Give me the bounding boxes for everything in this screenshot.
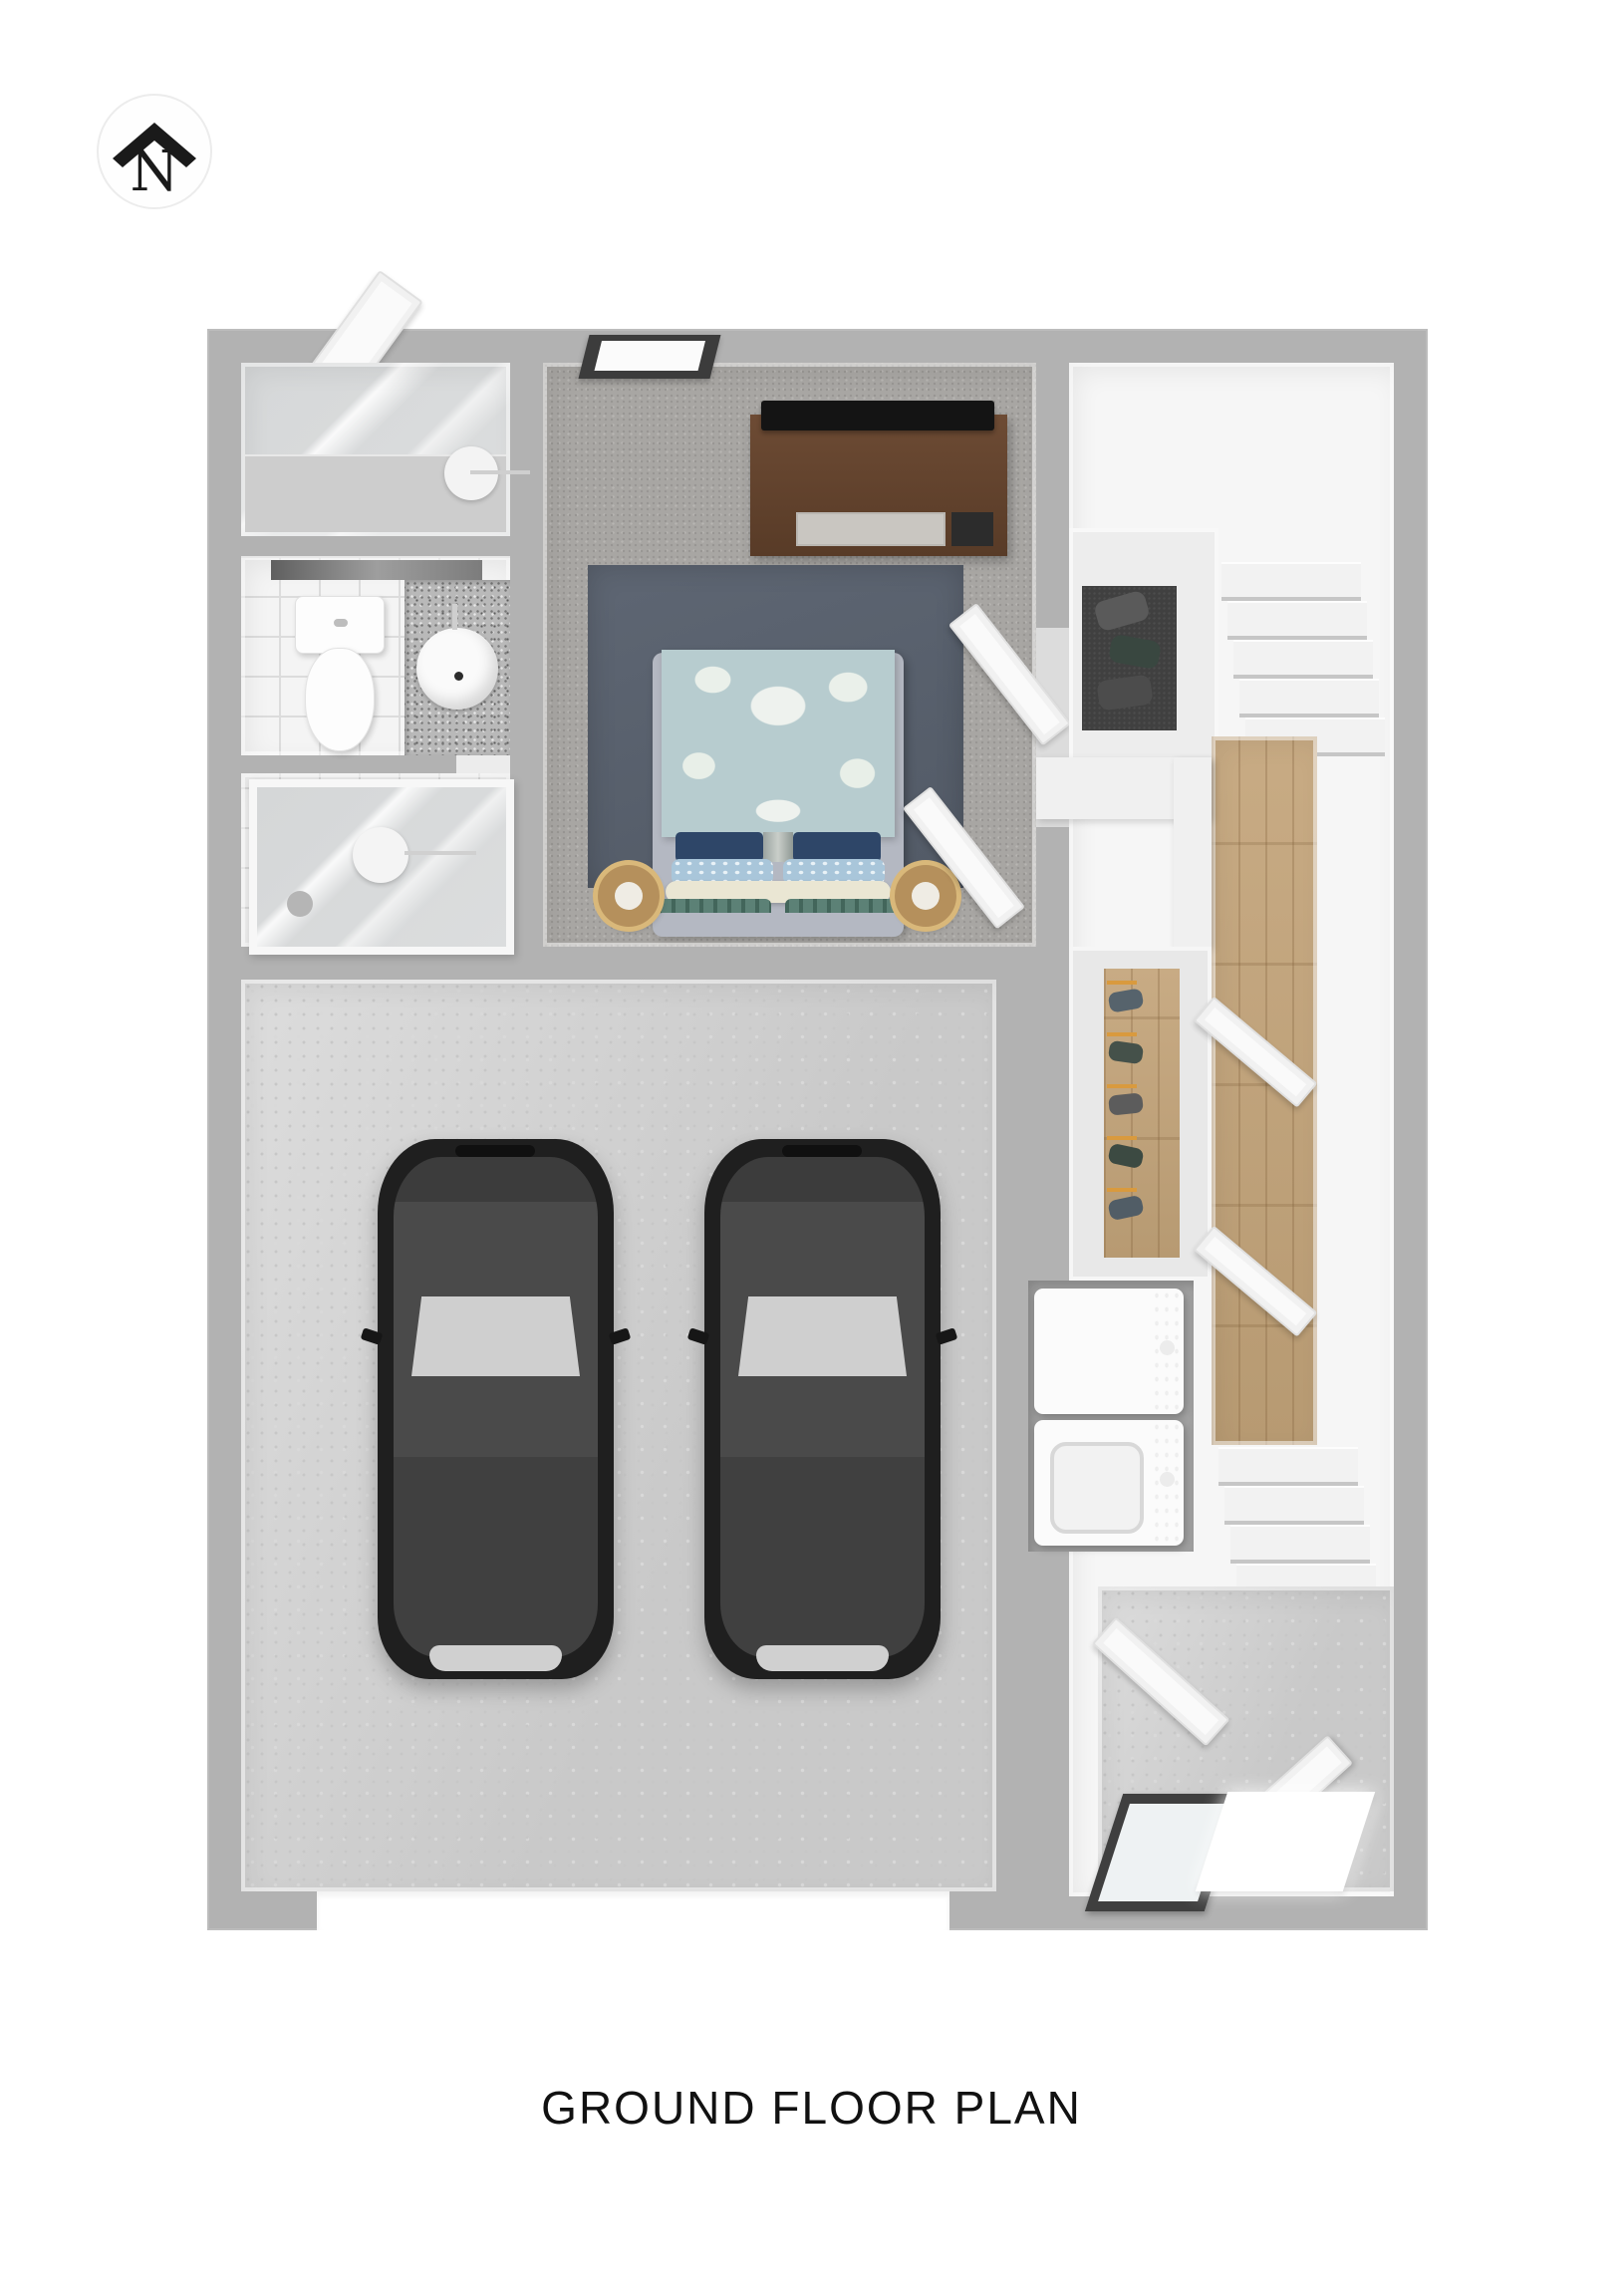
car-rear-window [756, 1645, 889, 1671]
car-roof [720, 1157, 925, 1657]
title-block: GROUND FLOOR PLAN [0, 2081, 1623, 2135]
car-roof [394, 1157, 598, 1657]
car-right [704, 1139, 941, 1679]
laundry-nook [1028, 1281, 1194, 1552]
hanger-hook [1107, 981, 1137, 985]
floor-plan-page: N [0, 0, 1623, 2296]
bedside-lamp-right [912, 882, 940, 910]
sink-drain [454, 672, 463, 681]
hanging-garment [1108, 1092, 1144, 1115]
folded-clothes-1 [1093, 589, 1151, 632]
shower-head-bottom [353, 827, 408, 883]
television [761, 401, 994, 430]
north-arrow-icon: N [96, 93, 213, 210]
floor-plan [207, 329, 1428, 1930]
hall-wall-stub-v [1174, 757, 1212, 947]
hanger-hook [1107, 1188, 1137, 1192]
stair-tread [1230, 1525, 1370, 1564]
landing-closet-interior [1082, 586, 1177, 730]
washer-control-panel [1152, 1289, 1184, 1414]
dryer-door [1050, 1442, 1144, 1534]
dryer-knob [1160, 1472, 1175, 1487]
bedside-table-right [895, 865, 956, 927]
bed-duvet-floral [662, 650, 895, 837]
vessel-sink [416, 628, 498, 710]
toilet-bowl [305, 648, 375, 751]
shower-arm-top [470, 470, 530, 474]
vanity-counter [405, 580, 510, 755]
shower-drain [287, 891, 313, 917]
bed-footboard [653, 913, 904, 937]
car-sunroof [455, 1145, 535, 1157]
dryer-control-panel [1152, 1420, 1184, 1546]
pillow-navy-left [676, 832, 763, 862]
hall-closet [1069, 947, 1212, 1281]
car-windshield [411, 1296, 580, 1376]
car-rear-window [429, 1645, 562, 1671]
north-indicator: N [96, 93, 213, 210]
hanger-hook [1107, 1084, 1137, 1088]
hanger-hook [1107, 1032, 1137, 1036]
hanger-hook [1107, 1136, 1137, 1140]
folded-clothes-3 [1096, 674, 1154, 711]
staircase-upper [1221, 562, 1361, 736]
washer [1034, 1289, 1184, 1414]
shower-room-top [241, 363, 510, 536]
bedroom-window [579, 335, 721, 379]
bath-door-opening [456, 755, 510, 773]
folded-clothes-2 [1108, 634, 1162, 670]
pillow-stripe-silver [763, 832, 793, 862]
stair-tread [1221, 562, 1361, 601]
car-left [378, 1139, 614, 1679]
dryer [1034, 1420, 1184, 1546]
stair-tread [1227, 601, 1367, 640]
stair-tread [1233, 640, 1373, 679]
stair-tread [1224, 1486, 1364, 1525]
tv-console [750, 415, 1007, 556]
sink-faucet [452, 604, 457, 630]
bedside-lamp-left [615, 882, 643, 910]
toilet-flush-button [334, 619, 348, 627]
page-title: GROUND FLOOR PLAN [541, 2082, 1082, 2134]
shower-room-bottom [241, 773, 510, 947]
stair-tread [1218, 1447, 1358, 1486]
washer-knob [1160, 1340, 1175, 1355]
garage [241, 980, 996, 1891]
staircase-lower [1218, 1447, 1358, 1586]
stair-tread [1239, 679, 1379, 717]
bedside-table-left [598, 865, 660, 927]
north-letter: N [131, 140, 179, 204]
bed-pillows-navy [676, 832, 881, 862]
toilet-room [241, 556, 510, 755]
car-windshield [738, 1296, 907, 1376]
toilet-tank [295, 596, 385, 654]
shower-arm-bottom [405, 851, 476, 855]
car-sunroof [782, 1145, 862, 1157]
vanity-mirror [271, 560, 482, 580]
console-drawer [796, 512, 946, 546]
pillow-navy-right [793, 832, 881, 862]
console-media-shelf [951, 512, 993, 546]
bedroom-window-glass [595, 341, 705, 371]
shower-enclosure-bottom [249, 779, 514, 955]
garage-door-opening [317, 1891, 949, 1930]
